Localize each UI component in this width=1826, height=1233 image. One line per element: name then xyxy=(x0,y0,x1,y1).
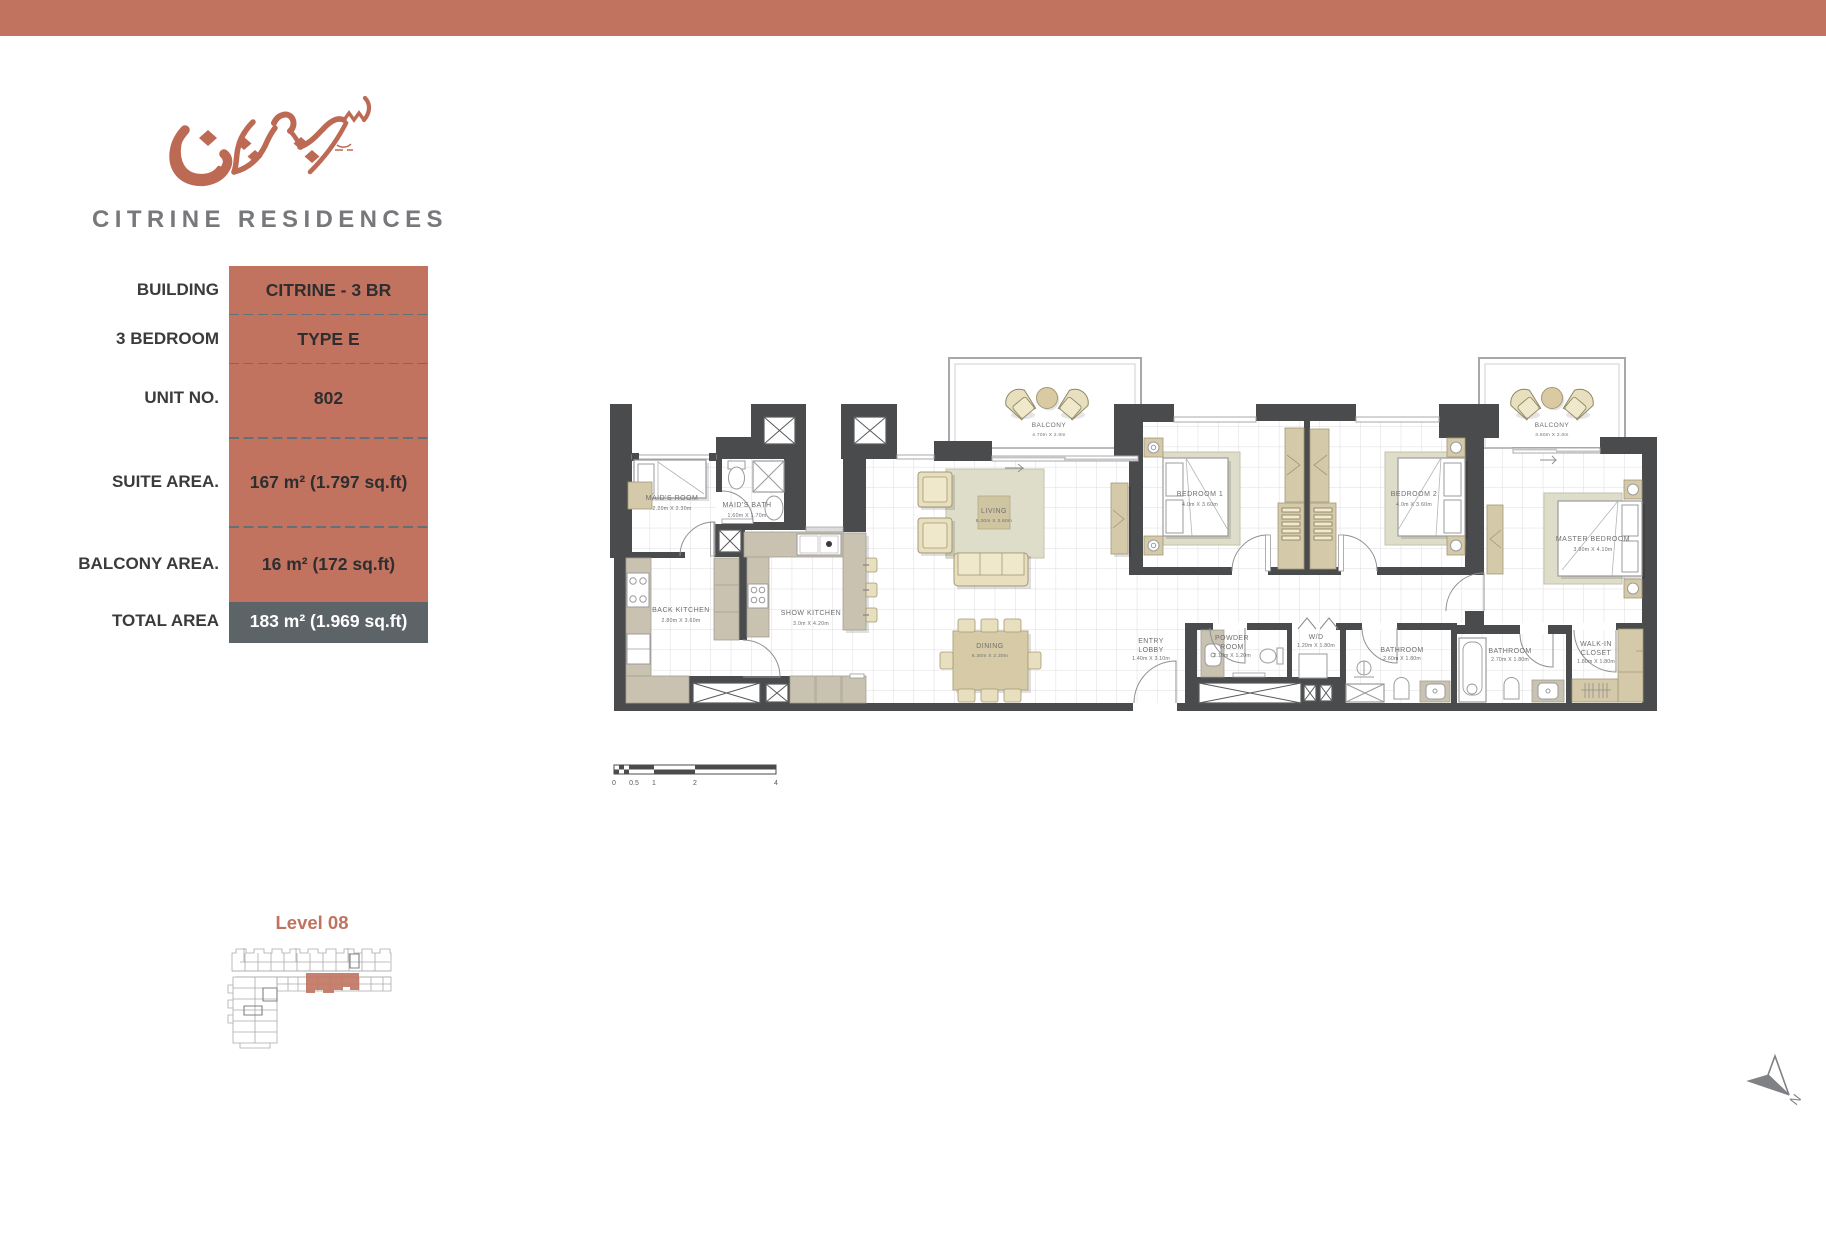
svg-text:3.0m X 4.20m: 3.0m X 4.20m xyxy=(793,621,829,627)
svg-text:BATHROOM: BATHROOM xyxy=(1488,648,1531,655)
svg-text:MAID'S BATH: MAID'S BATH xyxy=(722,502,771,509)
svg-text:6.30m X 3.60m: 6.30m X 3.60m xyxy=(976,518,1012,524)
svg-text:ENTRY: ENTRY xyxy=(1138,638,1164,645)
svg-text:POWDER: POWDER xyxy=(1215,635,1249,642)
svg-text:LIVING: LIVING xyxy=(981,508,1007,515)
svg-text:MASTER BEDROOM: MASTER BEDROOM xyxy=(1556,536,1630,543)
svg-text:2.80m X 3.60m: 2.80m X 3.60m xyxy=(661,618,700,624)
svg-text:1.20m X 1.80m: 1.20m X 1.80m xyxy=(1297,643,1335,649)
svg-text:W/D: W/D xyxy=(1309,634,1324,641)
svg-text:6.30m X 2.30m: 6.30m X 2.30m xyxy=(972,653,1008,659)
svg-text:2: 2 xyxy=(693,780,697,787)
svg-text:LOBBY: LOBBY xyxy=(1138,647,1163,654)
svg-text:4.0m X 3.60m: 4.0m X 3.60m xyxy=(1396,502,1432,508)
svg-text:0: 0 xyxy=(612,780,616,787)
svg-text:1: 1 xyxy=(652,780,656,787)
svg-text:BACK KITCHEN: BACK KITCHEN xyxy=(652,607,710,614)
svg-text:2.10m X 1.20m: 2.10m X 1.20m xyxy=(1213,653,1251,659)
svg-text:CLOSET: CLOSET xyxy=(1581,650,1612,657)
svg-text:1.40m X 3.10m: 1.40m X 3.10m xyxy=(1132,656,1170,662)
svg-text:WALK-IN: WALK-IN xyxy=(1580,641,1612,648)
svg-text:N: N xyxy=(1787,1091,1805,1108)
svg-text:DINING: DINING xyxy=(976,643,1004,650)
svg-text:1.60m X 1.70m: 1.60m X 1.70m xyxy=(727,513,766,519)
svg-text:4.0m X 3.60m: 4.0m X 3.60m xyxy=(1182,502,1218,508)
svg-text:SHOW KITCHEN: SHOW KITCHEN xyxy=(781,610,841,617)
svg-text:1.80m X 1.80m: 1.80m X 1.80m xyxy=(1577,659,1615,665)
svg-text:BALCONY: BALCONY xyxy=(1535,422,1570,429)
svg-text:2.70m X 1.80m: 2.70m X 1.80m xyxy=(1491,657,1529,663)
svg-text:0.5: 0.5 xyxy=(629,780,639,787)
svg-text:2.20m X 2.30m: 2.20m X 2.30m xyxy=(652,506,691,512)
svg-text:MAID'S ROOM: MAID'S ROOM xyxy=(646,495,699,502)
svg-text:BATHROOM: BATHROOM xyxy=(1380,647,1423,654)
svg-text:ROOM: ROOM xyxy=(1220,644,1243,651)
svg-text:3.50m X 2.0m: 3.50m X 2.0m xyxy=(1535,432,1568,438)
svg-text:2.60m X 1.80m: 2.60m X 1.80m xyxy=(1383,656,1421,662)
svg-text:BEDROOM 2: BEDROOM 2 xyxy=(1391,491,1438,498)
svg-text:4: 4 xyxy=(774,780,778,787)
svg-text:4.70m X 2.0m: 4.70m X 2.0m xyxy=(1032,432,1065,438)
svg-text:3.90m X 4.10m: 3.90m X 4.10m xyxy=(1573,547,1612,553)
svg-text:BEDROOM 1: BEDROOM 1 xyxy=(1177,491,1224,498)
svg-text:BALCONY: BALCONY xyxy=(1032,422,1067,429)
